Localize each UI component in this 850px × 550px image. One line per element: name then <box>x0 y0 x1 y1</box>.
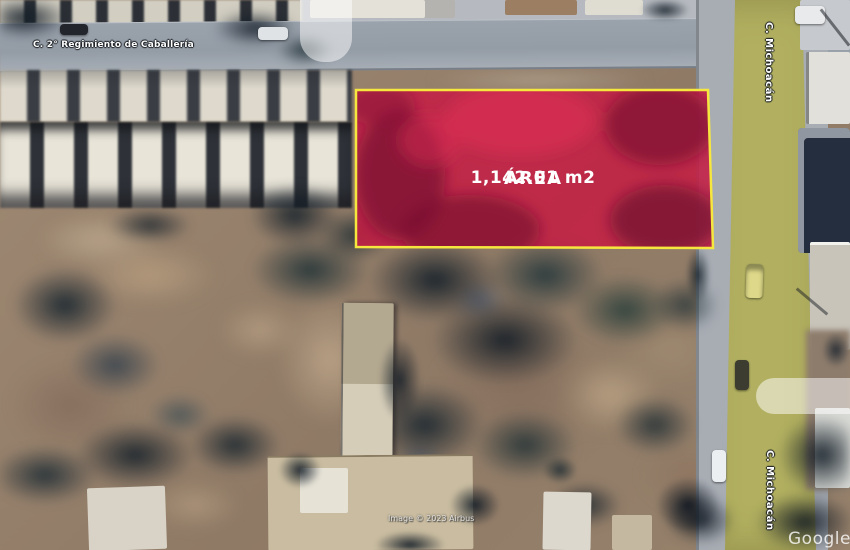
parcel-overlay <box>0 0 850 550</box>
parcel-area-label: ÁREA 1,142.01 m2 <box>356 92 710 248</box>
google-earth-watermark: Google Earth <box>788 529 850 549</box>
street-label-michoacan-top: C. Michoacán <box>763 22 774 117</box>
parcel-area-value: 1,142.01 m2 <box>471 168 596 188</box>
satellite-map: ÁREA 1,142.01 m2 C. 2° Regimiento de Cab… <box>0 0 850 550</box>
street-label-regimiento: C. 2° Regimiento de Caballería <box>33 40 194 50</box>
street-label-michoacan-bottom: C. Michoacán <box>764 450 775 550</box>
imagery-attribution: Image © 2023 Airbus <box>388 514 474 523</box>
